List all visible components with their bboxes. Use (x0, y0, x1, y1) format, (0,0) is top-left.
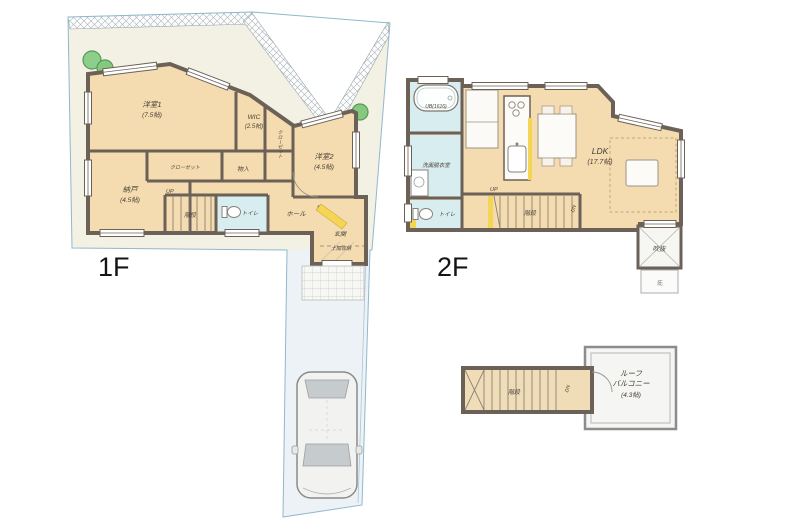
entrance-porch-tiles (302, 266, 364, 300)
up-label-1f: UP (166, 189, 174, 195)
doma-label: 土間収納 (331, 245, 352, 252)
kitchen-sink (508, 146, 526, 172)
balcony-label-line1: ルーフ (620, 369, 643, 378)
car-mirror-left (292, 446, 298, 454)
ldk-label: LDK (592, 146, 609, 156)
floorplan-svg: 洋室1 (7.5帖) WIC (2.5帖) 洋室2 (4.5帖) 納戸 (4.5… (0, 0, 800, 531)
eaves-label: 庇 (657, 279, 663, 287)
room-size-wic: (2.5帖) (245, 122, 263, 130)
bath-label: UB(1616) (425, 104, 447, 110)
room-label-closet2-vertical: クローゼット (276, 130, 282, 159)
hall-label: ホール (286, 210, 306, 218)
stairs-label-1f: 階段 (184, 211, 197, 219)
ldk-size: (17.7帖) (587, 158, 612, 166)
room-size-yoshitsu1: (7.5帖) (142, 111, 162, 119)
room-label-monoire: 物入 (237, 165, 249, 173)
kitchen-cabinet (466, 90, 498, 148)
room-size-nando: (4.5帖) (120, 196, 140, 204)
room-size-yoshitsu2: (4.5帖) (314, 163, 334, 171)
washroom-label: 洗面脱衣室 (422, 162, 451, 169)
toilet-label-1f: トイレ (242, 210, 259, 217)
car-mirror-right (356, 446, 362, 454)
floor-title-1f: 1F (98, 252, 130, 282)
entrance-label: 玄関 (334, 230, 347, 238)
toilet-icon (222, 207, 241, 218)
room-label-yoshitsu1: 洋室1 (142, 100, 161, 109)
stairs-label-roof: 階段 (508, 388, 521, 396)
washbasin-icon (411, 170, 428, 196)
dining-table-set (538, 106, 576, 166)
car-top-view (292, 372, 362, 498)
up-label-2f: UP (490, 187, 498, 193)
floorplan-canvas: 洋室1 (7.5帖) WIC (2.5帖) 洋室2 (4.5帖) 納戸 (4.5… (0, 0, 800, 531)
void-label: 吹抜 (653, 245, 668, 253)
room-label-yoshitsu2: 洋室2 (314, 152, 334, 161)
room-label-nando: 納戸 (123, 185, 139, 194)
balcony-label-line2: バルコニー (612, 379, 650, 388)
floor-title-2f: 2F (437, 252, 469, 282)
roof-balcony (585, 347, 676, 429)
floor-2f: UB(1616) 洗面脱衣室 トイレ LDK (17.7帖) 階段 UP DN … (405, 77, 685, 294)
roof-stair-block (463, 368, 592, 412)
kitchen-counter (504, 96, 532, 180)
toilet-label-2f: トイレ (439, 211, 456, 218)
toilet-icon (413, 209, 433, 220)
stairs-label-2f: 階段 (524, 209, 537, 217)
room-label-closet1: クローゼット (170, 164, 200, 171)
balcony-size: (4.3帖) (621, 391, 641, 399)
roof-balcony-section: 階段 DN ルーフ バルコニー (4.3帖) (463, 347, 676, 429)
room-label-wic: WIC (248, 114, 261, 121)
